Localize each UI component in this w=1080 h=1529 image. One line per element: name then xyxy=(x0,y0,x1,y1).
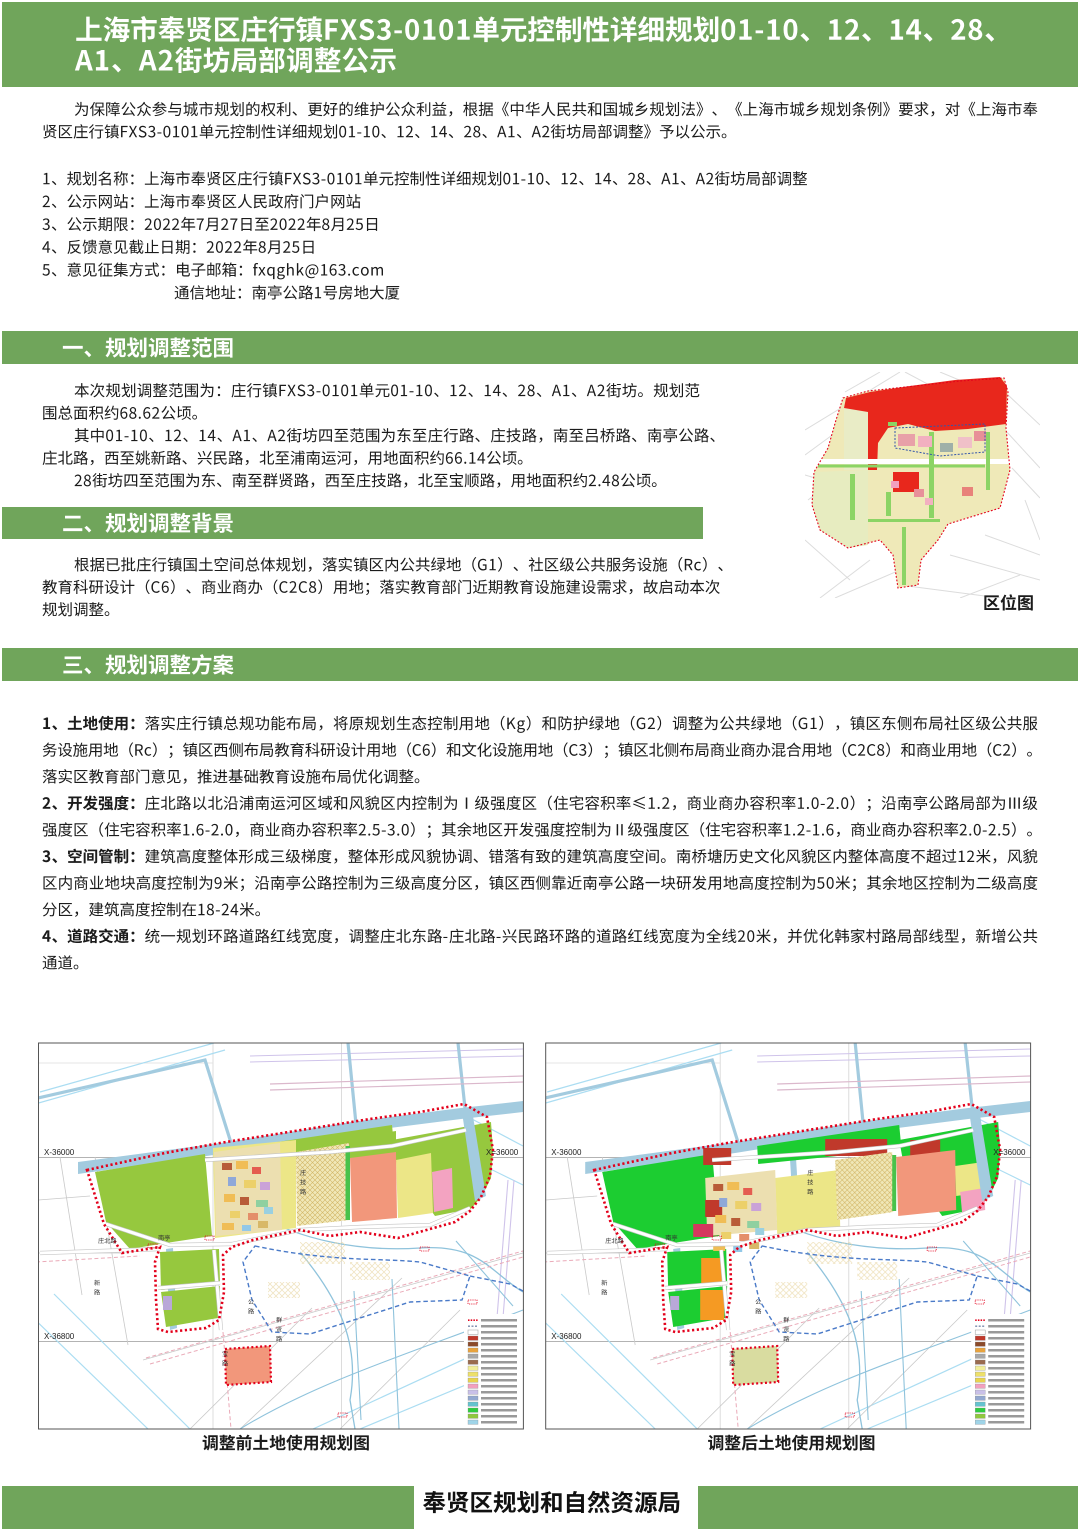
svg-text:X-36800: X-36800 xyxy=(44,1332,75,1341)
svg-text:X-36000: X-36000 xyxy=(44,1148,75,1157)
svg-text:X-36000: X-36000 xyxy=(551,1148,582,1157)
svg-text:X-36800: X-36800 xyxy=(551,1332,582,1341)
svg-text:X=36000: X=36000 xyxy=(486,1148,519,1157)
svg-text:X=36000: X=36000 xyxy=(993,1148,1026,1157)
